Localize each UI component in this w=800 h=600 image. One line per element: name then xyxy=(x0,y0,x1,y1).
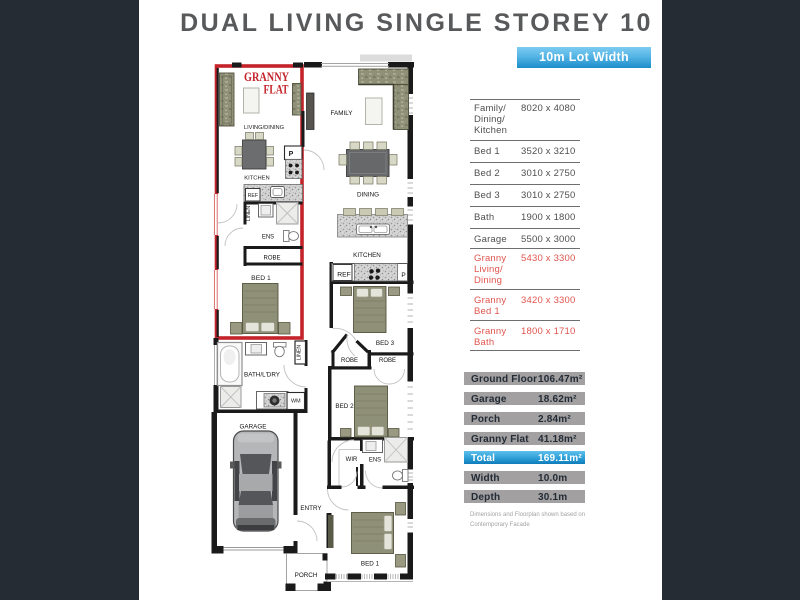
svg-text:BED 3: BED 3 xyxy=(376,340,395,347)
svg-text:BED 2: BED 2 xyxy=(335,403,354,410)
svg-text:P: P xyxy=(289,151,294,158)
svg-text:BED 1: BED 1 xyxy=(361,561,380,568)
svg-text:WM: WM xyxy=(291,399,301,405)
svg-text:REF: REF xyxy=(248,193,258,199)
svg-text:PORCH: PORCH xyxy=(295,572,318,579)
svg-text:LINEN: LINEN xyxy=(246,206,252,222)
svg-text:GARAGE: GARAGE xyxy=(240,424,267,431)
svg-text:FLAT: FLAT xyxy=(264,83,290,97)
svg-text:ROBE: ROBE xyxy=(379,358,396,364)
svg-text:KITCHEN: KITCHEN xyxy=(244,176,269,182)
svg-text:ROBE: ROBE xyxy=(341,358,358,364)
svg-text:LIVING/DINING: LIVING/DINING xyxy=(244,125,284,131)
svg-text:REF: REF xyxy=(337,272,351,279)
svg-text:WIR: WIR xyxy=(346,457,358,463)
svg-text:ENS: ENS xyxy=(369,458,381,464)
svg-text:DINING: DINING xyxy=(357,192,379,199)
svg-text:KITCHEN: KITCHEN xyxy=(353,252,381,259)
svg-text:BATH/L'DRY: BATH/L'DRY xyxy=(244,372,281,379)
svg-text:FAMILY: FAMILY xyxy=(331,110,354,117)
svg-text:BED 1: BED 1 xyxy=(251,275,271,282)
svg-text:ENTRY: ENTRY xyxy=(300,505,322,512)
svg-text:LINEN: LINEN xyxy=(297,345,303,361)
svg-text:P: P xyxy=(401,272,405,279)
svg-text:ENS: ENS xyxy=(262,235,274,241)
svg-text:ROBE: ROBE xyxy=(263,256,280,262)
